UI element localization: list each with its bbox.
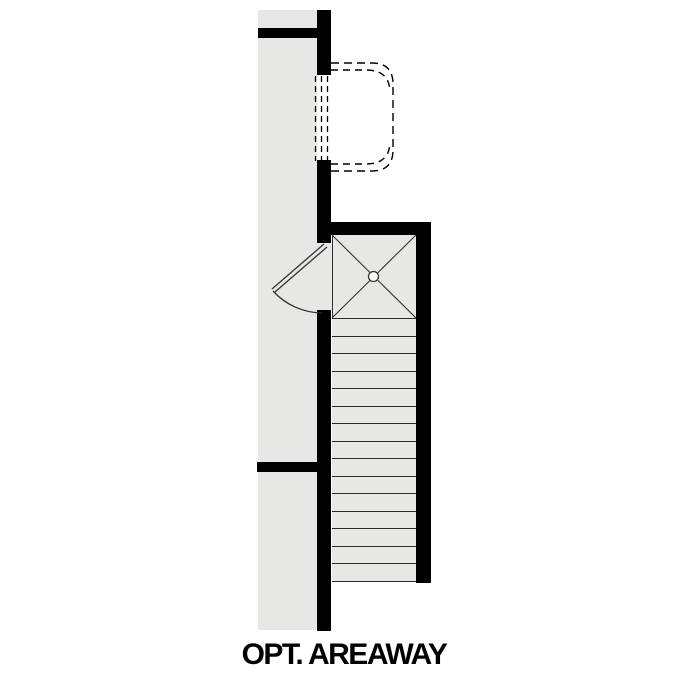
stair-tread xyxy=(332,406,416,424)
areaway-inner-top-dashed-path xyxy=(331,70,390,91)
stairwell-wall-right xyxy=(416,222,431,583)
stair-tread xyxy=(332,511,416,529)
wall-vertical-mid xyxy=(317,160,331,243)
stair-landing xyxy=(332,235,416,318)
stair-tread xyxy=(332,458,416,476)
stair-tread xyxy=(332,336,416,354)
stair-tread xyxy=(332,546,416,564)
plan-title: OPT. AREAWAY xyxy=(231,638,457,672)
stair-tread xyxy=(332,388,416,406)
areaway-outer-dashed-path xyxy=(331,63,393,171)
stair-tread xyxy=(332,423,416,441)
wall-horizontal-top xyxy=(258,28,317,38)
stair-tread xyxy=(332,528,416,546)
door-opening-floor xyxy=(317,243,332,310)
wall-vertical-lower xyxy=(317,310,331,631)
stair-tread xyxy=(332,493,416,511)
stair-tread xyxy=(332,441,416,459)
stair-tread xyxy=(332,353,416,371)
corridor-floor xyxy=(258,10,317,630)
floor-plan-canvas: OPT. AREAWAY xyxy=(0,0,687,687)
areaway-inner-bottom-dashed-path xyxy=(331,143,390,164)
stair-tread xyxy=(332,319,416,336)
areaway-dashed-outline xyxy=(331,63,393,171)
stair-tread xyxy=(332,476,416,494)
wall-opening-dashed-lines xyxy=(316,76,328,161)
wall-horizontal-lower xyxy=(257,462,317,472)
stair-tread xyxy=(332,563,416,581)
stair-treads xyxy=(332,318,416,582)
stair-tread xyxy=(332,371,416,389)
wall-vertical-upper xyxy=(317,10,331,75)
